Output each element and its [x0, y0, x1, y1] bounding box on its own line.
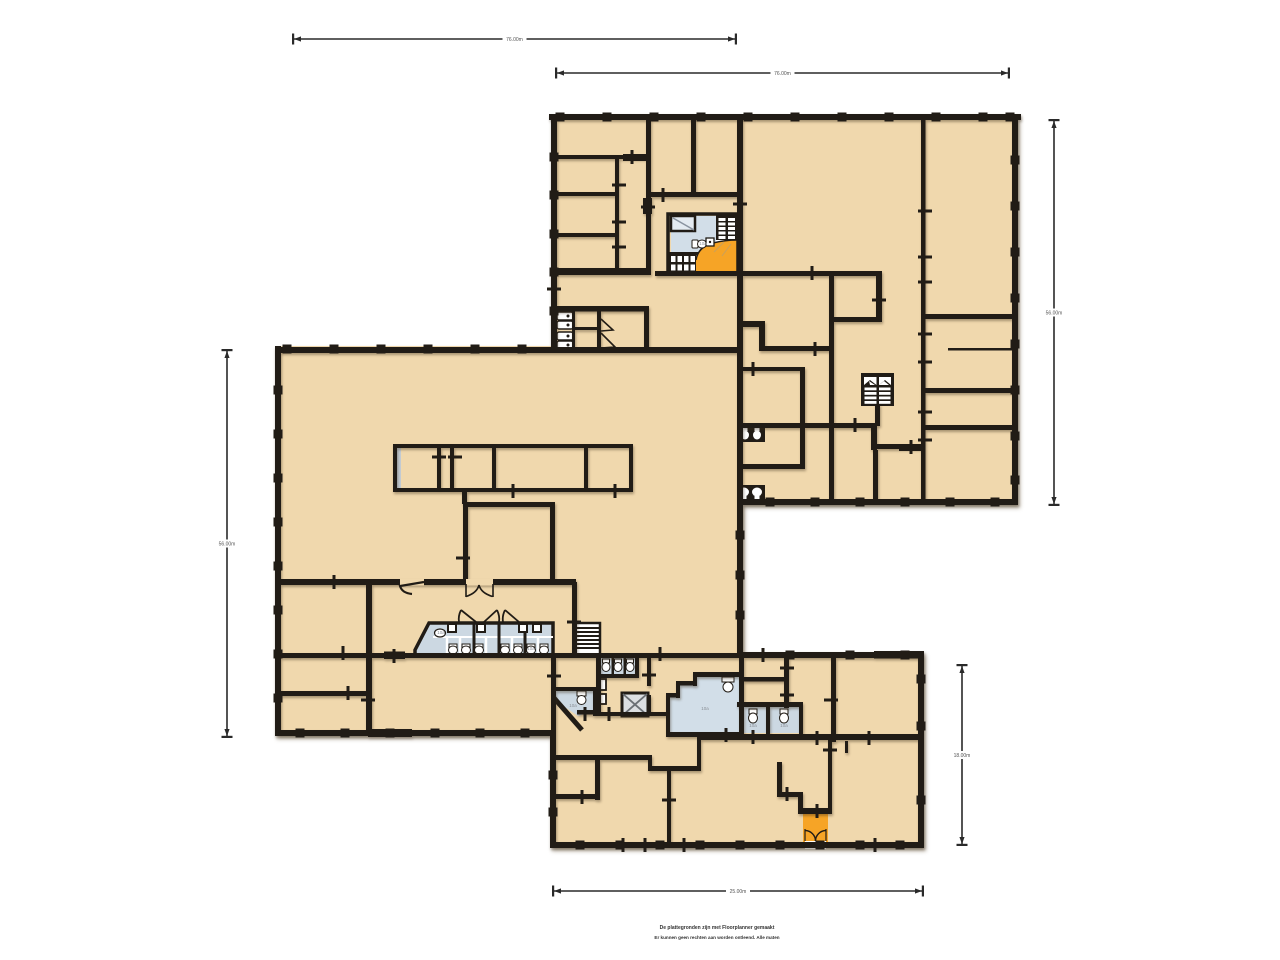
svg-text:De plattegronden zijn met Floo: De plattegronden zijn met Floorplanner g… [660, 925, 775, 931]
svg-text:25.00m: 25.00m [730, 889, 747, 895]
svg-text:18.00m: 18.00m [954, 753, 971, 759]
svg-text:76.00m: 76.00m [506, 37, 523, 43]
svg-text:10a: 10a [699, 241, 707, 246]
svg-text:10a: 10a [437, 630, 445, 635]
svg-text:10a: 10a [701, 706, 709, 711]
svg-text:10a: 10a [780, 723, 788, 728]
svg-text:10a: 10a [527, 646, 535, 651]
svg-text:76.00m: 76.00m [774, 71, 791, 77]
svg-text:10a: 10a [749, 723, 757, 728]
svg-text:Er kunnen geen rechten aan wor: Er kunnen geen rechten aan worden ontlee… [654, 935, 779, 940]
svg-text:56.00m: 56.00m [219, 542, 236, 548]
svg-text:56.00m: 56.00m [1046, 311, 1063, 317]
svg-text:10a: 10a [569, 703, 577, 708]
